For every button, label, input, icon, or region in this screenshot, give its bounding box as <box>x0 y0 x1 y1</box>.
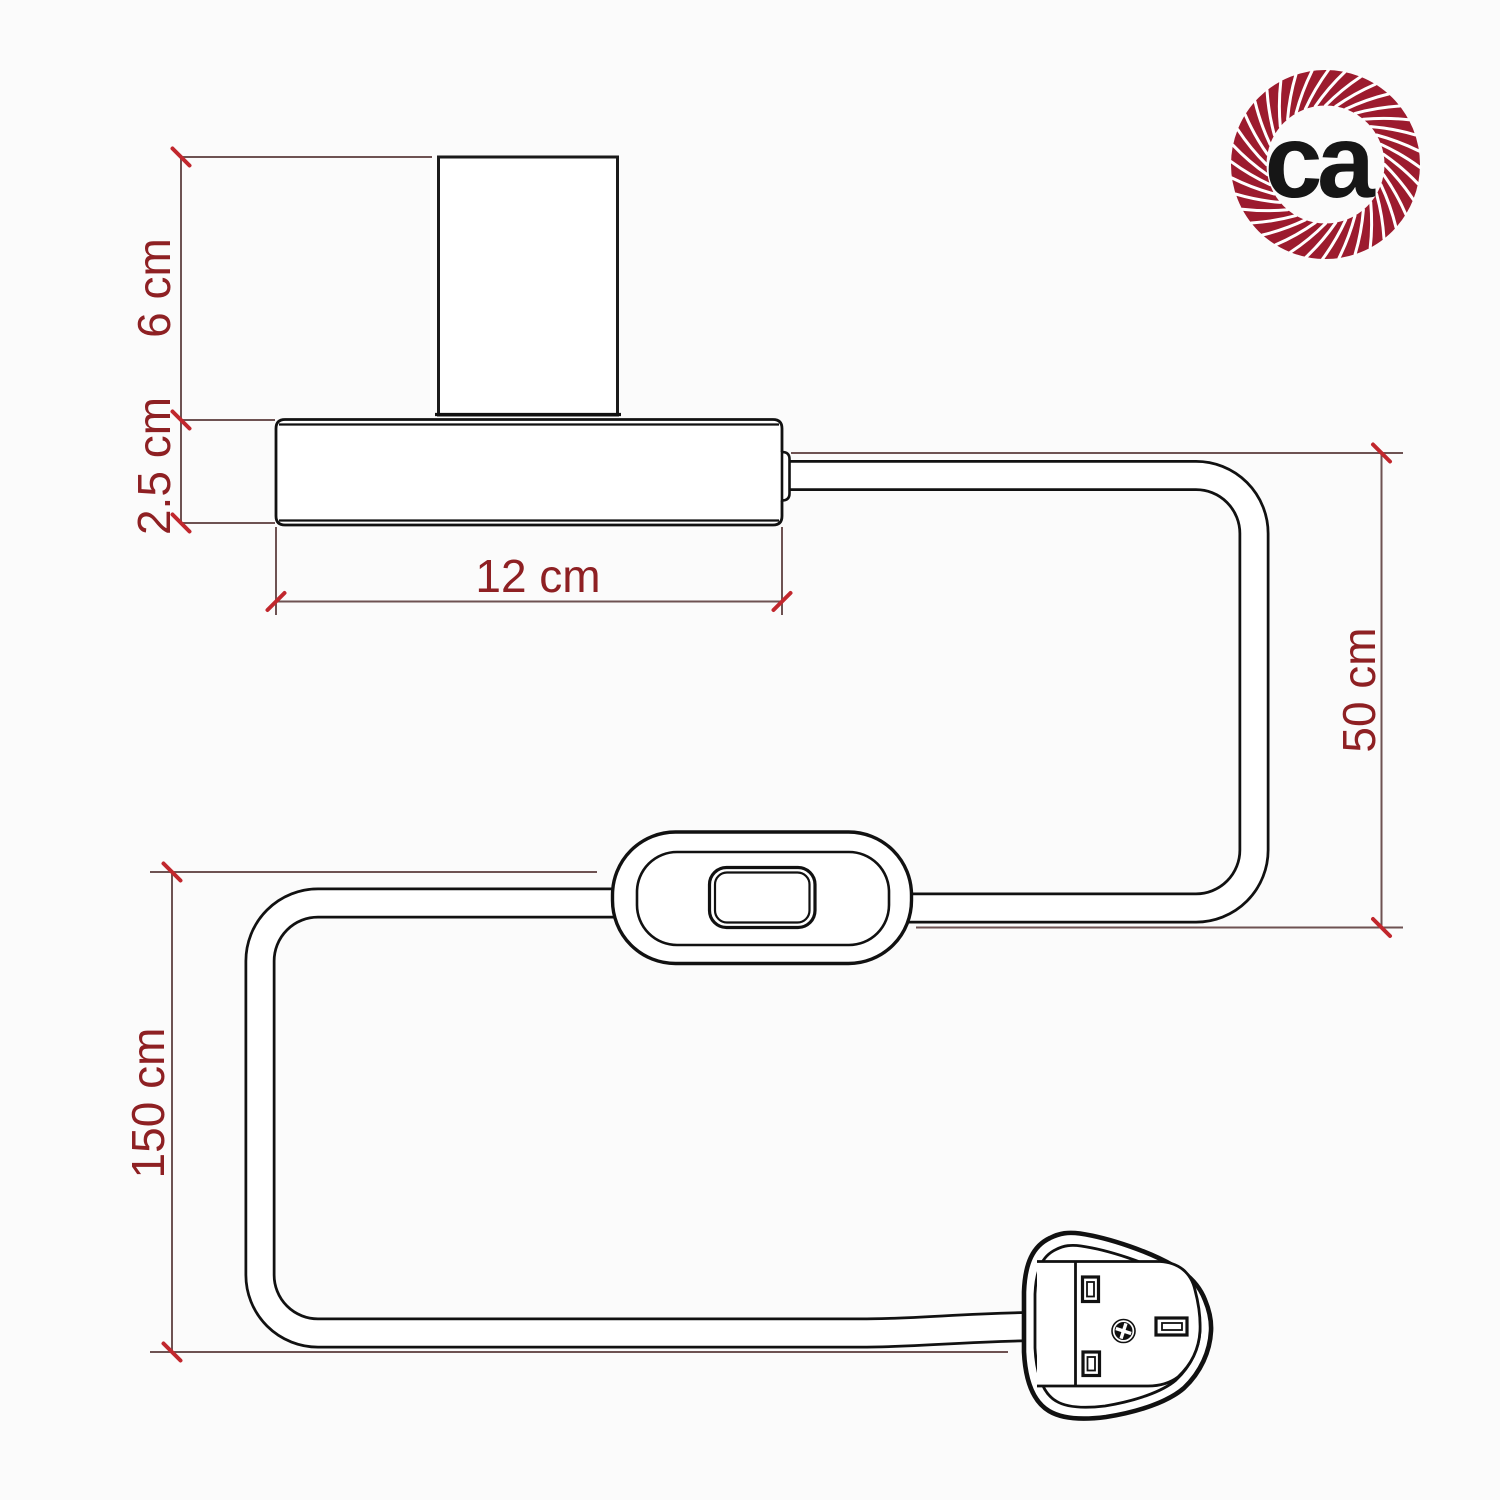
svg-text:12 cm: 12 cm <box>475 550 600 602</box>
svg-text:ca: ca <box>1265 104 1376 220</box>
svg-text:150 cm: 150 cm <box>122 1028 174 1179</box>
svg-text:2.5 cm: 2.5 cm <box>128 397 180 535</box>
svg-text:50 cm: 50 cm <box>1333 627 1385 752</box>
svg-text:6 cm: 6 cm <box>128 238 180 338</box>
